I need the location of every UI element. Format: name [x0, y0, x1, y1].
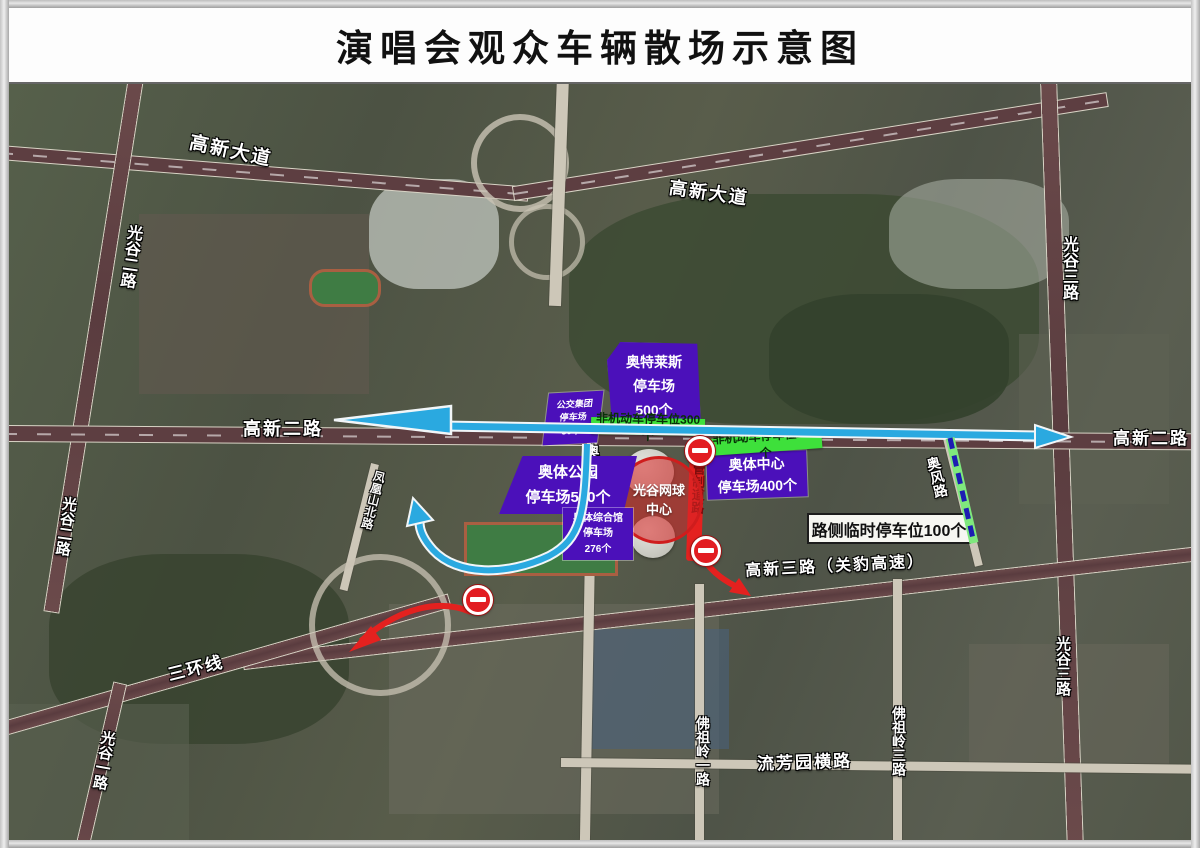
road-label-fozuling-1st: 佛祖岭一路 — [693, 716, 713, 786]
road-label-guanggu-3rd-top: 光谷三路 — [1056, 236, 1080, 300]
road-fozuling-1st — [695, 584, 704, 840]
road-aofeng — [941, 429, 983, 567]
no-entry-icon-control-south — [691, 536, 721, 566]
cleared-land — [889, 179, 1069, 289]
no-entry-icon-control-north — [685, 436, 715, 466]
frame-left — [0, 0, 9, 848]
forest-area — [769, 294, 1009, 424]
outlets-line1: 奥特莱斯 — [607, 351, 701, 375]
roadside-parking-label: 路侧临时停车位100个 — [807, 513, 971, 544]
venue-line2: 中心 — [646, 500, 672, 520]
east-campus — [1019, 334, 1169, 504]
page-title: 演唱会观众车辆散场示意图 — [336, 18, 864, 72]
satellite-map: 高新大道 高新大道 光谷二路 光谷二路 光谷三路 光谷三路 高新二路 高新二路 … — [9, 84, 1191, 840]
frame-right — [1191, 0, 1200, 848]
running-track — [309, 269, 381, 307]
interchange-loop-south — [309, 554, 451, 696]
road-label-aofeng: 奥风路 — [922, 454, 952, 500]
aoti-gym-line3: 276个 — [563, 542, 633, 558]
frame-top — [0, 0, 1200, 8]
parking-label-aoti-gym: 奥体综合馆 停车场 276个 — [563, 508, 633, 560]
aoti-park-line1: 奥体公园 — [499, 460, 637, 486]
venue-line1: 光谷网球 — [633, 481, 685, 501]
parking-label-aoti-park: 奥体公园 停车场550个 — [499, 456, 637, 514]
interchange-loop-mid — [509, 204, 585, 280]
road-label-guanggu-3rd-bottom: 光谷三路 — [1052, 636, 1073, 696]
aoti-gym-line2: 停车场 — [563, 526, 633, 542]
title-bar: 演唱会观众车辆散场示意图 — [9, 8, 1191, 84]
restriction-arc-control-arrowhead — [729, 578, 751, 596]
route-loop-arrowhead — [407, 498, 433, 526]
aoti-center-line2: 停车场400个 — [707, 473, 808, 499]
outlets-line2: 停车场 — [607, 375, 701, 399]
bike-parking-200: 非机动车停车位200个 — [708, 431, 823, 456]
road-label-gaoxin-2nd-west: 高新二路 — [243, 415, 323, 441]
diagram-page: 演唱会观众车辆散场示意图 — [0, 0, 1200, 848]
road-label-gaoxin-2nd-east: 高新二路 — [1113, 424, 1189, 449]
frame-bottom — [0, 840, 1200, 848]
aoti-park-line2: 停车场550个 — [499, 485, 637, 511]
road-label-fozuling-3rd: 佛祖岭三路 — [889, 706, 909, 776]
road-label-liufangyuan-heng: 流芳园横路 — [757, 746, 853, 774]
road-label-gaoxin-3rd: 高新三路（关豹高速） — [744, 547, 925, 580]
bike-parking-300: 非机动车停车位300个 — [591, 417, 705, 436]
aoti-gym-line1: 奥体综合馆 — [563, 511, 633, 527]
road-label-guanggu-2nd-mid: 光谷二路 — [51, 495, 80, 557]
no-entry-icon-interchange — [463, 585, 493, 615]
